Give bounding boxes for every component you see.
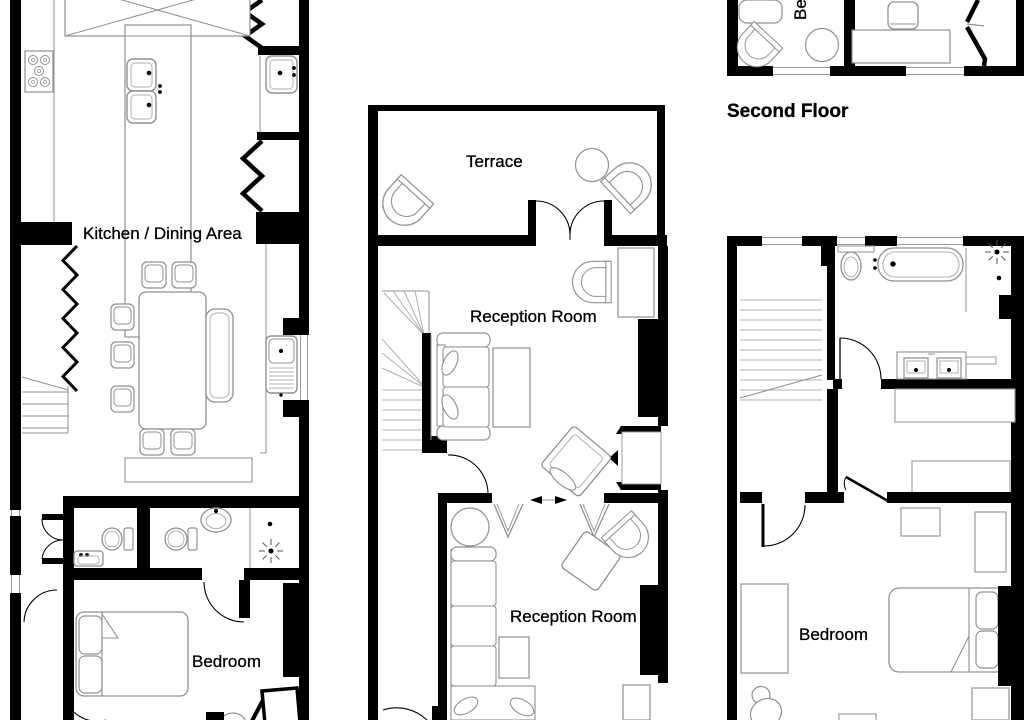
svg-text:Kitchen / Dining Area: Kitchen / Dining Area (83, 224, 242, 243)
svg-text:Reception Room: Reception Room (470, 307, 597, 326)
svg-text:Second Floor: Second Floor (727, 101, 849, 122)
svg-text:Bedroom: Bedroom (192, 652, 261, 671)
svg-text:Terrace: Terrace (466, 152, 523, 171)
svg-text:Bedroom: Bedroom (791, 0, 810, 20)
svg-text:Bedroom: Bedroom (799, 625, 868, 644)
svg-text:Reception Room: Reception Room (510, 607, 637, 626)
